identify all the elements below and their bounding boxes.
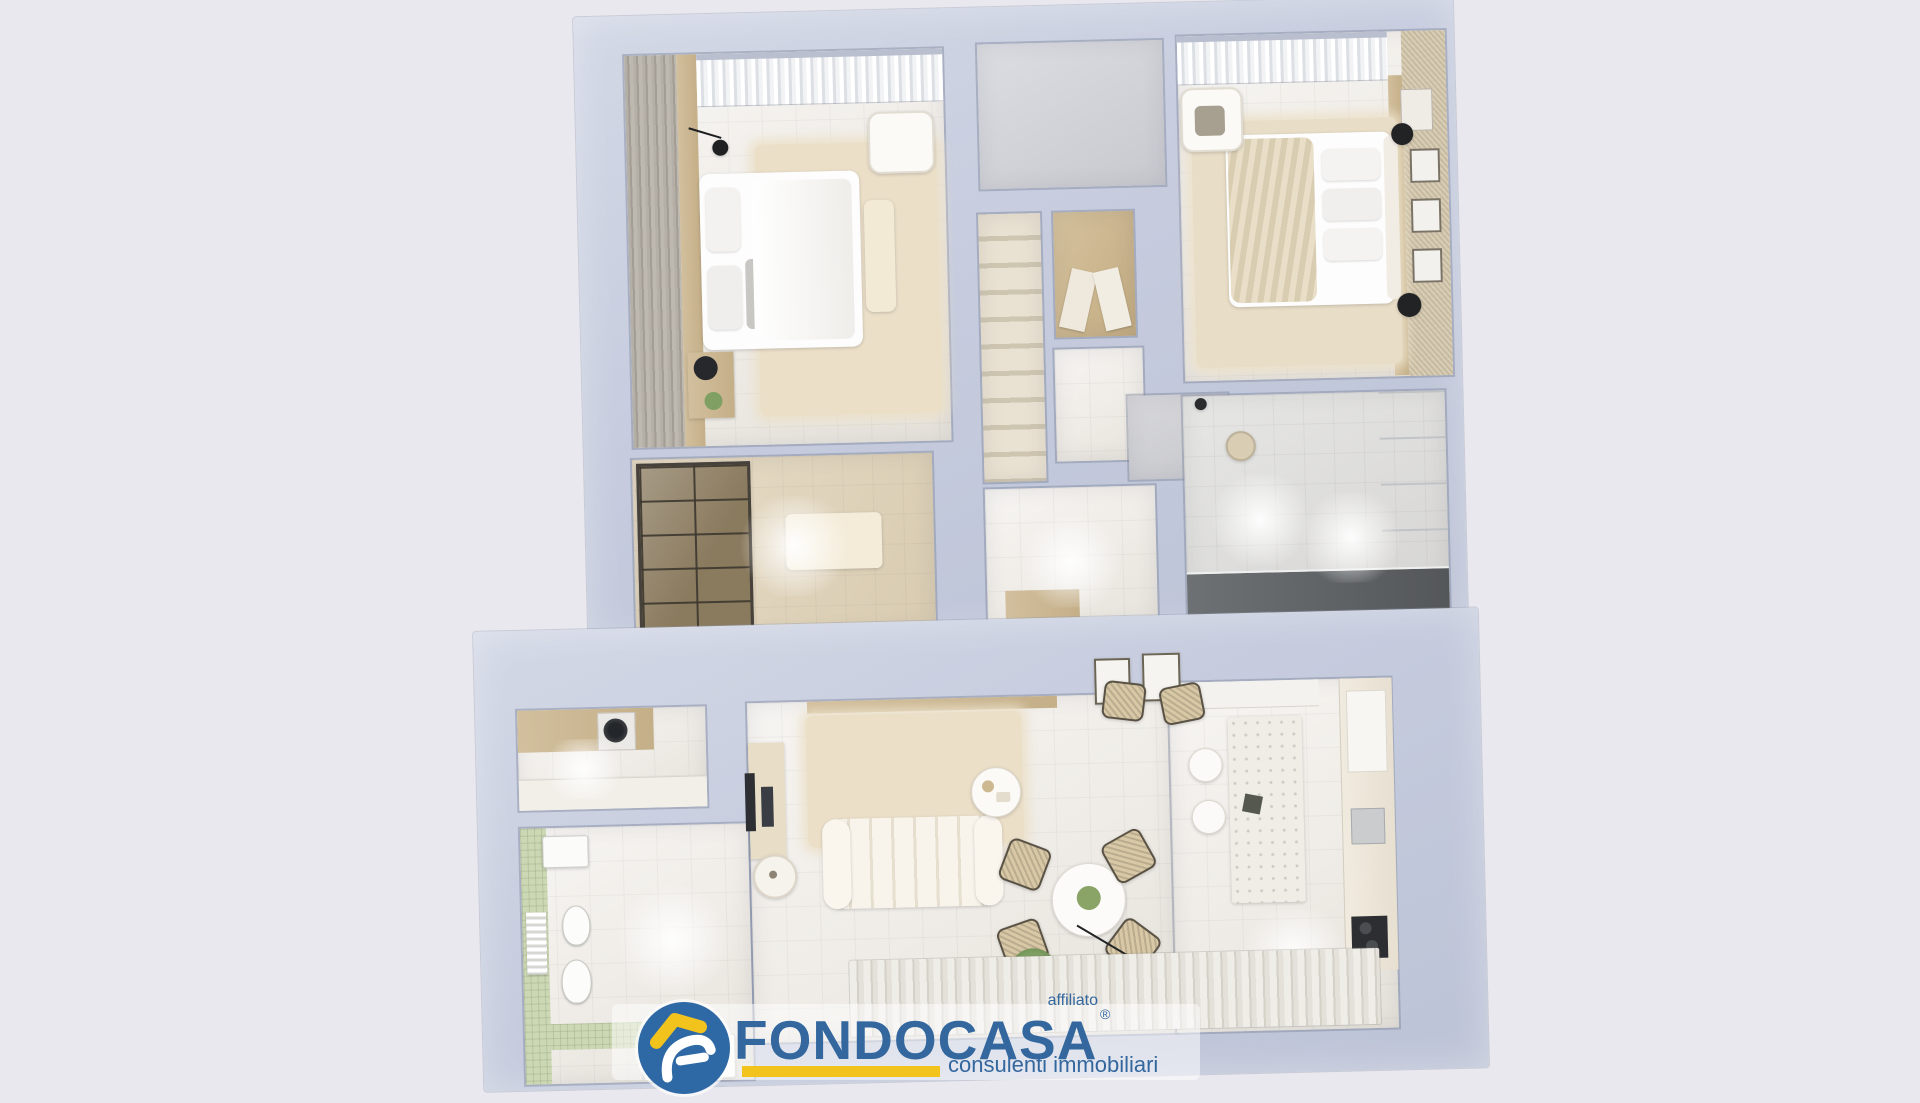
armchair-cushion [1194,105,1225,136]
bedroom-1-curtains [696,48,943,107]
bedroom-1-armchair [867,111,934,175]
kitchen-island [1227,716,1306,904]
dining-chair [997,836,1054,893]
wardrobe-room-floor [1183,390,1450,624]
closet-ottoman [785,512,882,570]
bed-pillow [707,265,743,330]
bed-pillow [705,187,741,252]
ceiling-spot [1195,398,1207,410]
corridor-lower [985,485,1158,629]
registered-trademark-symbol: ® [1100,1006,1110,1022]
affiliato-label: affiliato [1026,992,1098,1010]
kitchen-counter [1338,678,1398,971]
washing-machine [597,712,636,751]
pendant-lamp [1225,431,1256,462]
bed-duvet-fold [751,179,855,341]
dark-wardrobe-right [1378,390,1448,574]
logo-yellow-underline [742,1066,940,1077]
kitchen-stool [1191,800,1226,835]
tv-unit [748,742,787,859]
sofa [828,815,998,909]
bedroom-2-curtains [1177,31,1388,85]
logo-tagline: consulenti immobiliari [948,1052,1158,1078]
wall-frame [1412,248,1443,283]
floor-lamp [712,140,728,156]
towel-radiator [526,912,548,974]
bedroom-2-floor [1177,30,1453,381]
bed-pillow [1323,228,1382,261]
knit-throw [1227,137,1317,303]
open-door [1059,268,1097,332]
floor-plan-render [0,0,1920,1103]
sofa-armrest [822,819,852,910]
laundry-counter [519,775,708,811]
bar-chair [1101,680,1147,723]
black-vase [693,356,718,381]
bedroom-2-bed [1225,131,1395,307]
fridge [1346,690,1388,773]
upper-floor-walls [573,0,1468,643]
wall-frame [1411,198,1442,233]
decor-book [996,792,1010,802]
speaker [761,787,774,827]
walk-in-closet-floor [632,453,936,638]
hall-closet [1053,211,1136,338]
table-plant [1076,886,1101,911]
oven [1351,808,1386,845]
bed-pillow [1322,148,1381,181]
bathroom-sink [542,835,589,868]
record-table [753,854,798,899]
nightstand [687,351,735,418]
island-sink [1242,793,1263,814]
bedroom-1-accent-wall [624,55,686,448]
sofa-armrest [974,815,1004,906]
toilet [561,959,592,1004]
laundry-floor [517,706,707,811]
console-shelf [807,696,1057,714]
bedroom-2-armchair [1180,87,1244,152]
washer-door [603,718,628,743]
wall-frame [1410,148,1441,183]
plant [704,392,722,410]
logo-monogram-icon [638,1002,730,1094]
bar-chair [1158,681,1207,727]
decor-bowl [982,780,994,792]
bedroom-1-floor [624,48,951,448]
staircase [978,213,1047,482]
fondocasa-logo-mark [638,1002,730,1094]
kitchen-stool [1188,748,1223,783]
landing-floor [977,40,1165,189]
tv-screen [745,773,756,831]
bedroom-1-bed [699,170,863,350]
bidet [562,905,591,946]
glass-wardrobe [636,461,754,638]
open-door [1093,267,1132,331]
record-dot [769,871,777,879]
bed-pillow [1323,188,1382,221]
bed-bench [864,200,897,313]
